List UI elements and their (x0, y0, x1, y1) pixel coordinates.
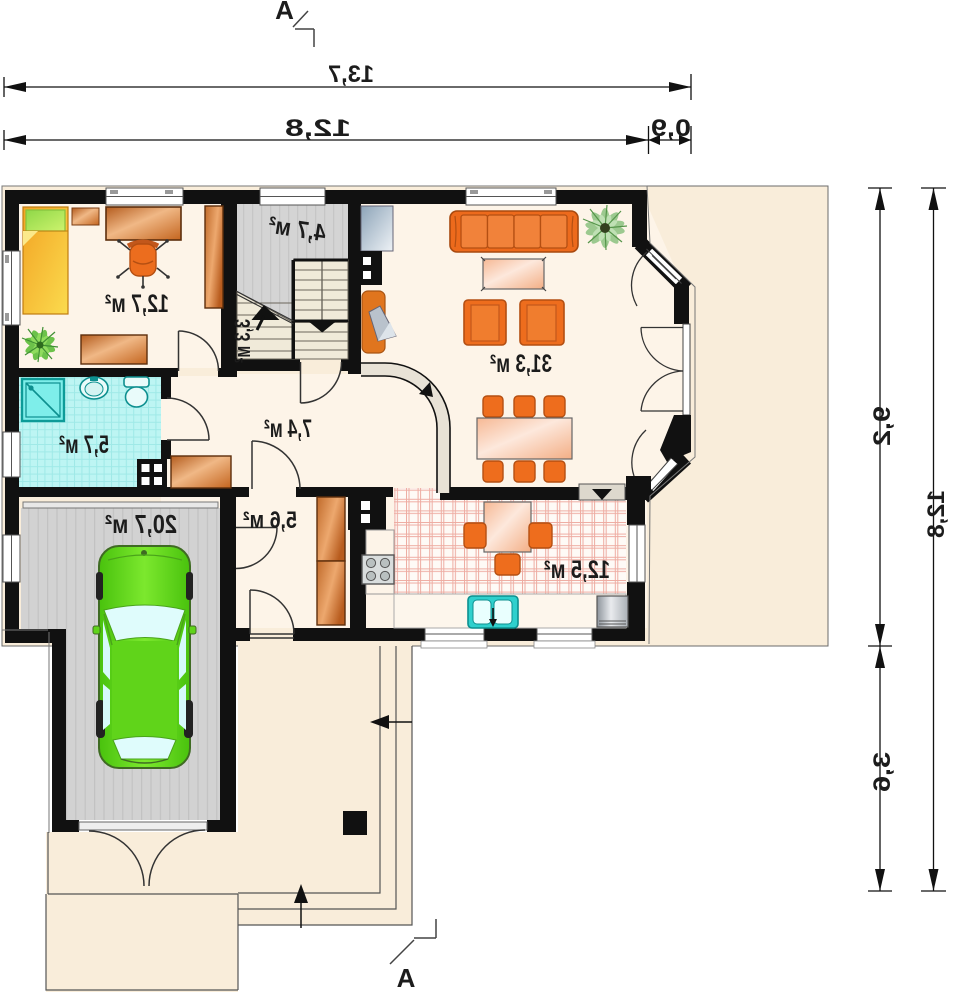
svg-text:7,4 м²: 7,4 м² (264, 415, 312, 443)
svg-text:31,3 м²: 31,3 м² (490, 350, 552, 378)
svg-text:9,2: 9,2 (869, 406, 896, 446)
svg-text:3,6: 3,6 (869, 752, 896, 792)
svg-text:12,5 м²: 12,5 м² (544, 556, 610, 584)
svg-text:5,6 м²: 5,6 м² (243, 507, 297, 534)
svg-text:12,8: 12,8 (285, 115, 351, 142)
svg-text:3,3 м²: 3,3 м² (230, 319, 255, 363)
svg-text:0,9: 0,9 (651, 115, 691, 142)
svg-text:5,7 м²: 5,7 м² (59, 431, 109, 459)
svg-text:12,7 м²: 12,7 м² (105, 290, 169, 318)
svg-text:A: A (275, 0, 294, 25)
svg-text:13,7: 13,7 (328, 61, 374, 88)
svg-text:A: A (396, 963, 415, 993)
svg-text:12,8: 12,8 (923, 490, 950, 538)
svg-text:20,7 м²: 20,7 м² (105, 509, 177, 539)
